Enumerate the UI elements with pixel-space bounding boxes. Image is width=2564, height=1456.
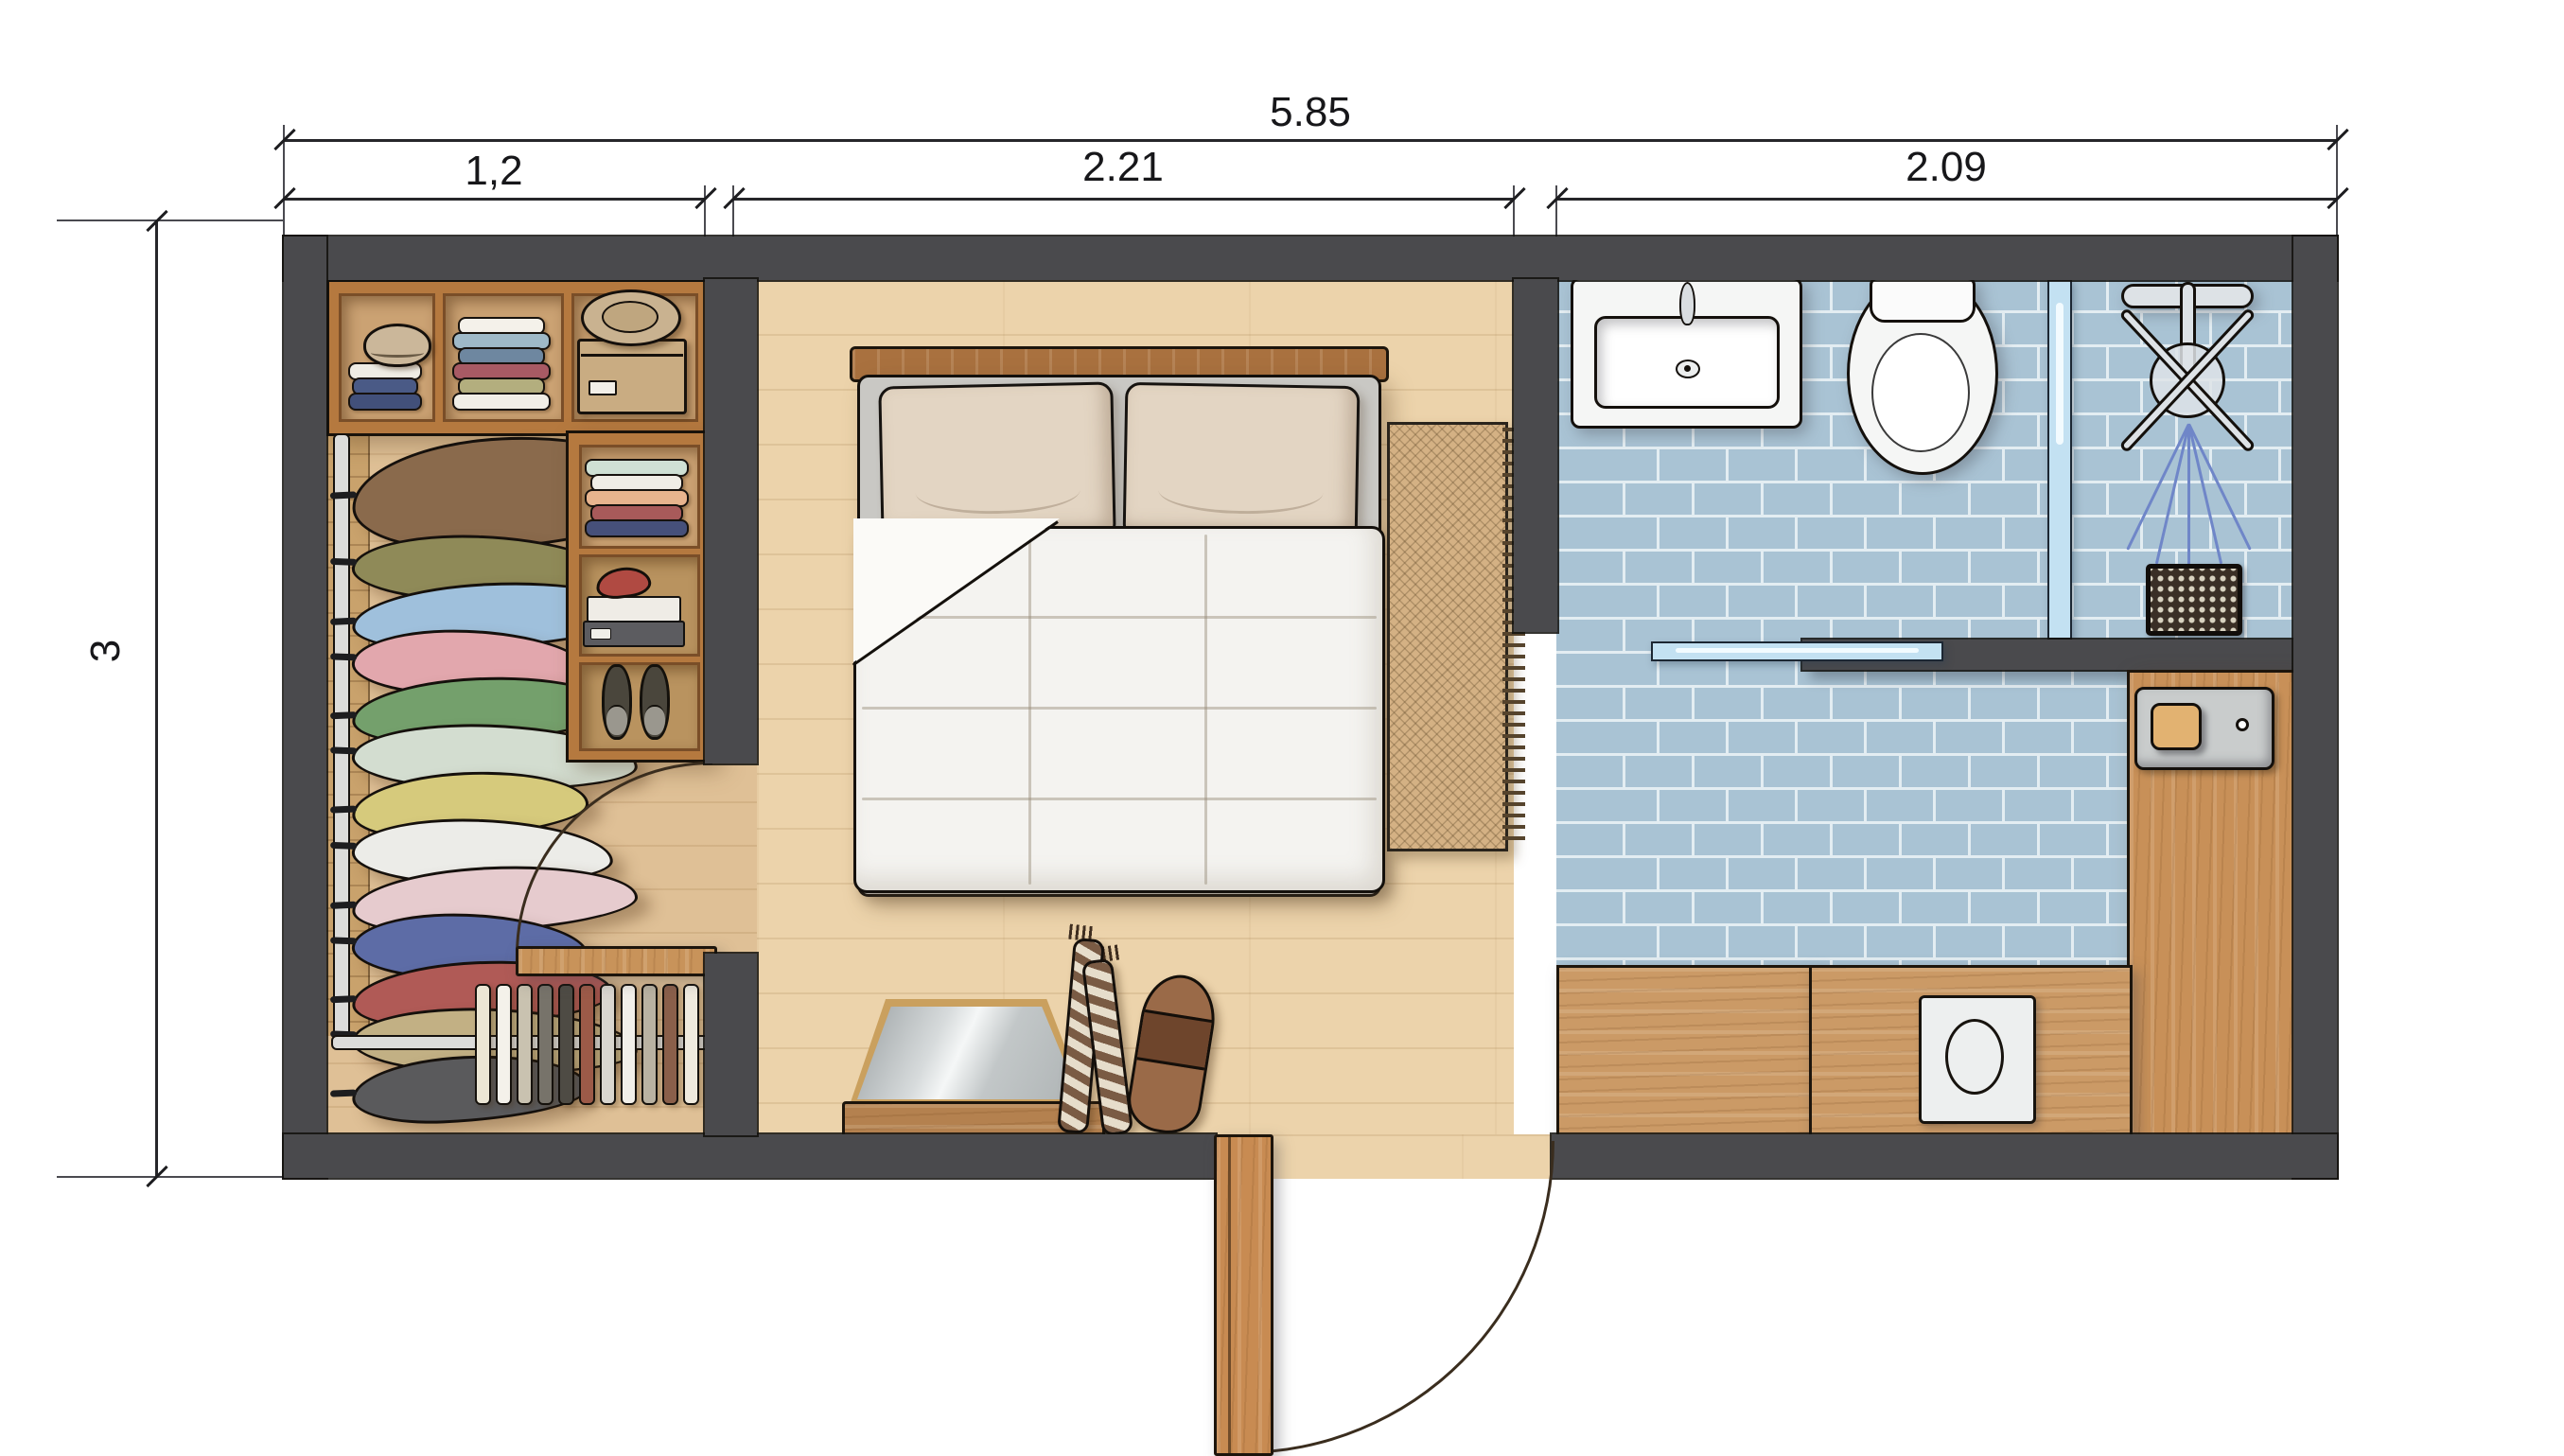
control-panel — [2134, 687, 2274, 770]
dimension-extension — [57, 1176, 284, 1178]
dimension-line-closet — [284, 198, 705, 201]
entry-door-swing-arc — [1241, 1141, 1554, 1454]
wall-top — [284, 237, 2337, 280]
cap-icon — [363, 324, 431, 367]
duvet-seam — [1204, 535, 1207, 885]
wall-right — [2293, 237, 2337, 1178]
glass-gleam — [1676, 648, 1918, 653]
toilet-seat-line — [1871, 333, 1970, 452]
hanging-pants — [641, 984, 658, 1105]
dimension-label-bathroom-width: 2.09 — [1905, 144, 1987, 191]
wall-bottom-left — [284, 1134, 1216, 1178]
closet-door-leaf — [516, 946, 717, 976]
hanger-hook-icon — [330, 937, 357, 944]
sneaker-icon — [640, 664, 670, 740]
tile-row — [1556, 517, 2294, 552]
sneaker-sole — [644, 705, 665, 735]
bedside-rug — [1387, 422, 1508, 851]
box-label — [588, 380, 617, 395]
glass-gleam — [2056, 303, 2064, 446]
wall-bathroom-partition — [1514, 279, 1557, 632]
wall-left — [284, 237, 326, 1178]
folded-garment — [452, 393, 551, 411]
fedora-crown — [602, 301, 659, 333]
dimension-label-bedroom-width: 2.21 — [1082, 144, 1164, 191]
folded-garment — [585, 519, 689, 537]
cap-brim — [371, 348, 424, 358]
hanger-hook-icon — [330, 653, 357, 660]
hanging-pants — [662, 984, 678, 1105]
flush-plate-oval — [1945, 1019, 2004, 1095]
dimension-extension — [57, 219, 284, 221]
wall-closet-partition-lower — [705, 954, 757, 1135]
shoe-box-label — [590, 628, 611, 640]
folded-clothes-stack — [587, 450, 687, 537]
folded-clothes-stack — [454, 301, 549, 411]
dimension-label-overall-width: 5.85 — [1270, 89, 1351, 136]
hanger-hook-icon — [330, 995, 357, 1003]
hanging-pants — [600, 984, 616, 1105]
toilet — [1847, 272, 2004, 481]
closet-hanging-rail — [333, 433, 350, 1037]
hanger-hook-icon — [330, 1089, 357, 1096]
hanger-hook-icon — [330, 842, 357, 850]
toilet-cistern — [1870, 277, 1976, 323]
dimension-line-overall — [284, 139, 2337, 142]
hanging-pants — [558, 984, 574, 1105]
slipper-strap — [1134, 1009, 1215, 1071]
door-edge-line — [1228, 1137, 1231, 1453]
hanging-pants — [517, 984, 533, 1105]
bathroom-bench — [1556, 965, 1815, 1140]
hanging-pants — [537, 984, 553, 1105]
hanger-hook-icon — [330, 805, 357, 813]
storage-box-lid-line — [581, 354, 683, 357]
hanging-pants — [579, 984, 595, 1105]
sink-drain-icon — [1676, 360, 1700, 378]
bed-pillow — [1123, 382, 1361, 543]
hanger-hook-icon — [330, 491, 357, 499]
panel-button — [2151, 703, 2202, 750]
faucet-icon — [1679, 282, 1695, 325]
hanger-hook-icon — [330, 746, 357, 754]
duvet-seam — [1028, 535, 1031, 885]
sneaker-icon — [602, 664, 632, 740]
flush-plate — [1919, 995, 2036, 1124]
dimension-extension — [1555, 185, 1557, 240]
floor-drain-icon — [2146, 564, 2242, 636]
dimension-line-bedroom — [733, 198, 1514, 201]
folded-garment — [348, 393, 422, 411]
mirror-glass-icon — [857, 1007, 1082, 1099]
dimension-label-closet-width: 1,2 — [465, 148, 522, 195]
dimension-line-height — [155, 220, 158, 1178]
hanger-hook-icon — [330, 558, 357, 566]
dimension-extension — [704, 185, 706, 240]
dimension-line-bathroom — [1556, 198, 2337, 201]
wall-closet-partition-upper — [705, 279, 757, 763]
shower-glass-panel — [2047, 279, 2072, 640]
hanging-pants — [475, 984, 491, 1105]
shoe-box-white — [587, 596, 681, 623]
hanger-hook-icon — [330, 711, 357, 719]
hanger-hook-icon — [330, 618, 357, 625]
sliding-glass-door — [1651, 641, 1943, 661]
sink — [1571, 277, 1802, 429]
entry-door-leaf — [1214, 1134, 1273, 1456]
tile-row — [1556, 483, 2294, 517]
duvet-seam — [862, 707, 1377, 710]
hanging-pants — [621, 984, 637, 1105]
hanging-pants — [683, 984, 699, 1105]
panel-indicator-dot — [2236, 718, 2249, 731]
dimension-extension — [1513, 185, 1515, 240]
shower-spray-line — [2187, 424, 2190, 570]
wall-bottom-right — [1552, 1134, 2337, 1178]
hanger-hook-icon — [330, 902, 357, 909]
drain-dot — [1684, 365, 1691, 372]
duvet-seam — [862, 798, 1377, 800]
sneaker-sole — [606, 705, 627, 735]
dimension-label-overall-height: 3 — [82, 640, 130, 662]
hanging-pants — [496, 984, 512, 1105]
duvet-seam — [862, 616, 1377, 619]
floor-plan: 5.85 1,2 2.21 2.09 3 — [0, 0, 2564, 1453]
dimension-extension — [732, 185, 734, 240]
storage-box — [577, 339, 687, 414]
